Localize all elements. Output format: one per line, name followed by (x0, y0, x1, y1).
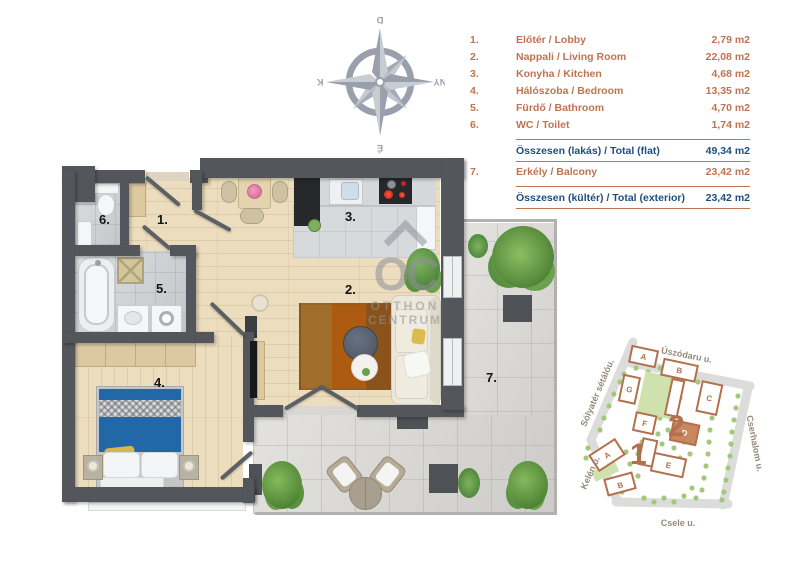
washing-machine-door (159, 311, 174, 326)
balcony-railing-top (463, 219, 557, 222)
nightstand-left-lamp (87, 460, 99, 472)
otthon-centrum-watermark: OC OTTHON CENTRUM (362, 226, 448, 327)
total-flat-area: 49,34 m2 (706, 145, 750, 157)
legend-row: 1.Előtér / Lobby2,79 m2 (470, 34, 750, 51)
room-area: 4,70 m2 (711, 102, 750, 114)
room-name: Hálószoba / Bedroom (516, 85, 706, 97)
wall-bath-right (186, 251, 196, 333)
lobby-cabinet (127, 183, 146, 217)
total-exterior-label: Összesen (kültér) / Total (exterior) (516, 192, 685, 204)
compass-label-left: K (316, 76, 323, 87)
room-legend: 1.Előtér / Lobby2,79 m2 2.Nappali / Livi… (470, 34, 750, 211)
wall-wc-lobby (120, 183, 129, 245)
wall-bath-top-a (75, 245, 140, 256)
compass-label-up: D (376, 14, 383, 25)
room-number: 5. (470, 102, 486, 114)
bed-pillow-right (141, 452, 178, 478)
planter-1 (503, 295, 532, 322)
french-door-threshold (283, 406, 357, 415)
label-living: 2. (345, 282, 356, 297)
compass-rose: D NY É K (315, 14, 445, 154)
room-name: Előtér / Lobby (516, 34, 711, 46)
tv-panel (250, 341, 257, 398)
bathtub-faucet (95, 260, 101, 266)
label-bathroom: 5. (156, 281, 167, 296)
room-number: 6. (470, 119, 486, 131)
balcony-table (349, 477, 382, 510)
legend-row: 6.WC / Toilet1,74 m2 (470, 119, 750, 136)
total-exterior-row: Összesen (kültér) / Total (exterior)23,4… (516, 186, 750, 209)
room-name: Nappali / Living Room (516, 51, 706, 63)
wall-bath-bottom (62, 332, 196, 343)
hall-lamp (251, 294, 269, 312)
kitchen-sink-basin (341, 182, 359, 200)
compass-label-right: NY (433, 76, 445, 87)
wardrobe (75, 340, 196, 367)
wall-kitchen-top (200, 158, 464, 178)
coffee-table-plant (362, 368, 370, 376)
compass-hub (376, 78, 384, 86)
wall-bedroom-top (196, 332, 214, 343)
bed-blanket-band (99, 400, 181, 417)
room-number: 4. (470, 85, 486, 97)
wall-bedroom-bottom (62, 487, 255, 502)
tv-bench (257, 341, 265, 400)
total-exterior-area: 23,42 m2 (706, 192, 750, 204)
room-area: 13,35 m2 (706, 85, 750, 97)
balcony-plant-small (468, 234, 488, 258)
wc-sink (77, 221, 92, 247)
bathtub-basin (84, 264, 109, 325)
balcony-railing-right (554, 219, 557, 515)
wall-living-bottom-a (253, 405, 283, 417)
dining-chair-right (272, 181, 288, 203)
nightstand-right-lamp (183, 460, 195, 472)
flower-vase (247, 184, 262, 199)
room-name: Fürdő / Bathroom (516, 102, 711, 114)
stove-burner-2 (399, 192, 405, 198)
stove-burner-1 (384, 190, 393, 199)
label-kitchen: 3. (345, 209, 356, 224)
balcony-plant-left (262, 461, 302, 509)
bathroom-sink-basin (124, 311, 142, 325)
sofa-pillow-yellow (411, 328, 426, 345)
room-area: 23,42 m2 (706, 166, 750, 178)
room-name: Konyha / Kitchen (516, 68, 711, 80)
room-area: 1,74 m2 (711, 119, 750, 131)
balcony-railing-bottom (255, 512, 557, 515)
room-number: 1. (470, 34, 486, 46)
bedroom-window-ledge (88, 502, 246, 511)
window-living-2 (443, 338, 462, 386)
legend-row: 3.Konyha / Kitchen4,68 m2 (470, 68, 750, 85)
room-name: WC / Toilet (516, 119, 711, 131)
balcony-plant-right (508, 461, 548, 509)
room-number: 2. (470, 51, 486, 63)
legend-row-balcony: 7.Erkély / Balcony23,42 m2 (470, 166, 750, 183)
stove-pan (387, 180, 396, 189)
room-area: 4,68 m2 (711, 68, 750, 80)
legend-row: 2.Nappali / Living Room22,08 m2 (470, 51, 750, 68)
street-label-cserhalom: Cserhalom u. (745, 414, 766, 472)
label-lobby: 1. (157, 212, 168, 227)
label-bedroom: 4. (154, 375, 165, 390)
planter-3 (397, 416, 428, 429)
room-number: 3. (470, 68, 486, 80)
site-map: A B C G F D E A B 1 2 Úszódaru u. (578, 330, 793, 540)
legend-row: 5.Fürdő / Bathroom4,70 m2 (470, 102, 750, 119)
room-area: 22,08 m2 (706, 51, 750, 63)
bed-pillow-left (103, 452, 140, 478)
laundry-basket (117, 257, 144, 284)
planter-2 (429, 464, 458, 493)
total-flat-label: Összesen (lakás) / Total (flat) (516, 145, 660, 157)
balcony-fern (492, 226, 554, 288)
block2-number: 2 (668, 410, 685, 443)
bed-blanket (99, 389, 181, 452)
street-label-csele: Csele u. (661, 518, 696, 528)
watermark-line2: CENTRUM (362, 313, 448, 327)
total-flat-row: Összesen (lakás) / Total (flat)49,34 m2 (516, 139, 750, 162)
wall-lobby-right (192, 170, 202, 210)
block1-number: 1 (630, 438, 647, 471)
watermark-line1: OTTHON (362, 299, 448, 313)
balcony-plant-center (458, 468, 480, 498)
compass-label-down: É (377, 142, 383, 153)
wall-bedroom-right-b (243, 478, 254, 503)
dining-chair-bottom (240, 208, 264, 224)
label-wc: 6. (99, 212, 110, 227)
cutting-board (308, 219, 321, 232)
stove-burner-3 (401, 181, 406, 186)
floorplan-sheet: D NY É K 1.Előtér / Lobby2,79 m2 2.Nappa… (0, 0, 800, 565)
dining-chair-left (221, 181, 237, 203)
legend-row: 4.Hálószoba / Bedroom13,35 m2 (470, 85, 750, 102)
toilet-tank (93, 183, 119, 194)
room-number: 7. (470, 166, 486, 178)
room-name: Erkély / Balcony (516, 166, 706, 178)
label-balcony: 7. (486, 370, 497, 385)
room-area: 2,79 m2 (711, 34, 750, 46)
